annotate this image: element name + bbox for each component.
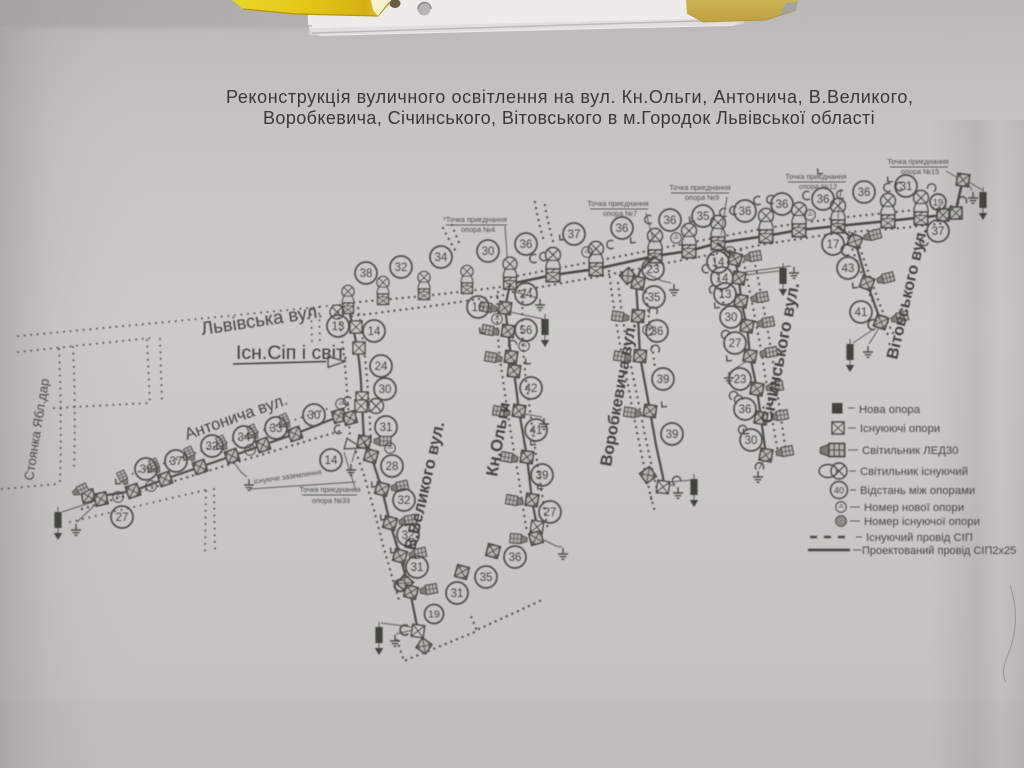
svg-text:40: 40 [834,485,844,495]
svg-text:19: 19 [933,198,944,209]
svg-text:Точка приєднання: Точка приєднання [587,199,648,208]
svg-text:опора №9: опора №9 [685,193,719,202]
svg-text:35: 35 [648,292,661,304]
svg-text:Номер нової опори: Номер нової опори [864,502,964,514]
svg-text:Точка приєднання: Точка приєднання [785,172,846,181]
svg-text:Відстань між опорами: Відстань між опорами [860,485,975,497]
svg-text:30: 30 [379,384,392,396]
svg-text:опора №7: опора №7 [603,209,637,218]
svg-text:36: 36 [664,215,677,227]
svg-text:27: 27 [729,338,742,350]
svg-text:34: 34 [238,432,251,444]
svg-text:*Точка приєднання: *Точка приєднання [443,215,507,224]
svg-text:27: 27 [544,507,557,519]
svg-text:Реконструкція вуличного освіт: Реконструкція вуличного освітлення на ву… [226,87,914,107]
svg-text:Існуючий провід СІП: Існуючий провід СІП [866,532,973,544]
svg-text:17: 17 [827,239,840,251]
svg-text:Світильник ЛЕД30: Світильник ЛЕД30 [862,445,958,457]
svg-text:35: 35 [480,572,493,584]
svg-text:36: 36 [616,223,629,235]
svg-text:Нова опора: Нова опора [859,404,921,416]
svg-text:36: 36 [509,552,522,564]
svg-text:14: 14 [368,326,381,338]
svg-text:37: 37 [932,226,945,238]
svg-text:Воробкевича, Січинського, Віто: Воробкевича, Січинського, Вітовського в … [263,108,875,128]
svg-text:36: 36 [739,206,752,218]
svg-text:33: 33 [270,423,283,435]
svg-text:30: 30 [482,246,495,258]
svg-text:37: 37 [170,456,183,468]
svg-text:Існ.Сіп і світ.: Існ.Сіп і світ. [236,342,348,364]
svg-text:28: 28 [386,461,399,473]
svg-text:30: 30 [308,410,321,422]
svg-text:42: 42 [525,383,538,395]
svg-text:39: 39 [536,470,549,482]
svg-text:опора №12: опора №12 [799,182,837,191]
svg-text:30: 30 [745,435,758,447]
svg-text:41: 41 [855,307,868,319]
svg-text:опора №15: опора №15 [901,167,939,176]
svg-text:34: 34 [435,252,448,264]
svg-text:16: 16 [472,302,485,314]
svg-text:31: 31 [411,562,424,574]
svg-text:41: 41 [530,425,543,437]
svg-text:32: 32 [395,262,408,274]
svg-text:Існуюючі опори: Існуюючі опори [860,423,940,435]
svg-text:36: 36 [776,199,789,211]
svg-text:27: 27 [116,512,129,524]
svg-text:39: 39 [666,429,679,441]
svg-text:36: 36 [739,404,752,416]
svg-text:30: 30 [725,312,738,324]
svg-text:32: 32 [206,441,219,453]
svg-text:39: 39 [657,374,670,386]
svg-text:опора №4: опора №4 [461,225,495,234]
svg-text:35: 35 [697,211,710,223]
svg-text:31: 31 [380,422,393,434]
svg-text:Точка приєднання: Точка приєднання [887,157,948,166]
svg-text:39: 39 [140,464,153,476]
svg-text:Номер існуючої опори: Номер існуючої опори [864,516,980,528]
svg-text:Проектований провід СІП2х25: Проектований провід СІП2х25 [862,545,1016,557]
svg-text:37: 37 [568,229,581,241]
svg-text:56: 56 [520,325,533,337]
svg-text:Світильник існуючий: Світильник існуючий [860,466,968,478]
svg-text:Точка приєднання: Точка приєднання [299,485,360,494]
svg-text:23: 23 [734,374,747,386]
svg-text:43: 43 [842,263,855,275]
svg-text:36: 36 [520,239,533,251]
svg-text:19: 19 [428,609,440,621]
svg-text:38: 38 [360,268,373,280]
svg-text:14: 14 [325,455,338,467]
svg-text:опора №33: опора №33 [312,496,350,505]
svg-text:31: 31 [451,588,464,600]
svg-text:13: 13 [332,321,345,333]
svg-text:24: 24 [375,361,388,373]
svg-text:32: 32 [398,495,411,507]
svg-text:Точка приєднання: Точка приєднання [669,183,730,192]
svg-text:36: 36 [817,194,830,206]
svg-text:36: 36 [858,187,871,199]
svg-text:13: 13 [719,289,732,301]
